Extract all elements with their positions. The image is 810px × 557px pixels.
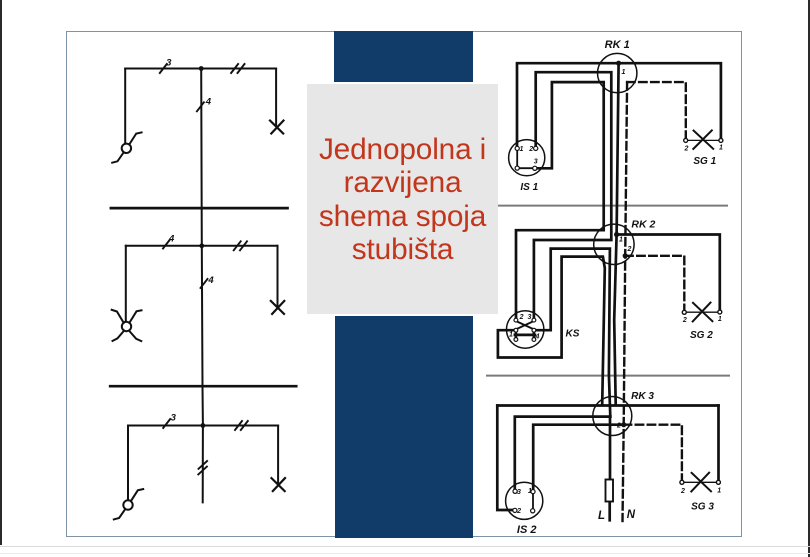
svg-text:1: 1 — [717, 487, 721, 494]
svg-text:4: 4 — [205, 96, 212, 107]
svg-text:L: L — [598, 510, 605, 522]
svg-text:1: 1 — [528, 488, 532, 495]
svg-text:3: 3 — [534, 159, 538, 166]
svg-text:3: 3 — [171, 413, 177, 424]
svg-text:SG 3: SG 3 — [691, 502, 714, 513]
svg-text:2: 2 — [680, 488, 685, 495]
svg-text:1: 1 — [619, 237, 623, 244]
svg-text:3: 3 — [166, 58, 172, 69]
svg-text:RK 1: RK 1 — [605, 39, 630, 51]
svg-text:SG 2: SG 2 — [690, 330, 713, 341]
svg-text:2: 2 — [516, 508, 521, 515]
svg-text:1: 1 — [622, 69, 626, 76]
svg-text:3: 3 — [528, 314, 532, 321]
svg-text:2: 2 — [682, 317, 687, 324]
svg-text:1: 1 — [509, 332, 513, 339]
svg-text:4: 4 — [168, 234, 175, 245]
svg-text:N: N — [627, 509, 636, 521]
svg-text:2: 2 — [528, 146, 533, 153]
svg-text:2: 2 — [626, 246, 631, 253]
svg-text:1: 1 — [719, 144, 723, 151]
svg-text:RK 2: RK 2 — [631, 219, 655, 231]
svg-text:1: 1 — [718, 316, 722, 323]
svg-text:4: 4 — [207, 275, 214, 286]
svg-text:IS 1: IS 1 — [520, 182, 538, 193]
svg-text:SG 1: SG 1 — [693, 156, 716, 167]
svg-text:KS: KS — [566, 328, 580, 339]
svg-text:2: 2 — [684, 146, 689, 153]
svg-text:2: 2 — [616, 422, 621, 429]
svg-text:2: 2 — [519, 314, 524, 321]
svg-text:3: 3 — [517, 489, 521, 496]
svg-text:IS 2: IS 2 — [517, 524, 537, 536]
svg-text:RK 3: RK 3 — [631, 391, 654, 402]
svg-text:1: 1 — [520, 146, 524, 153]
svg-text:4: 4 — [535, 334, 540, 341]
